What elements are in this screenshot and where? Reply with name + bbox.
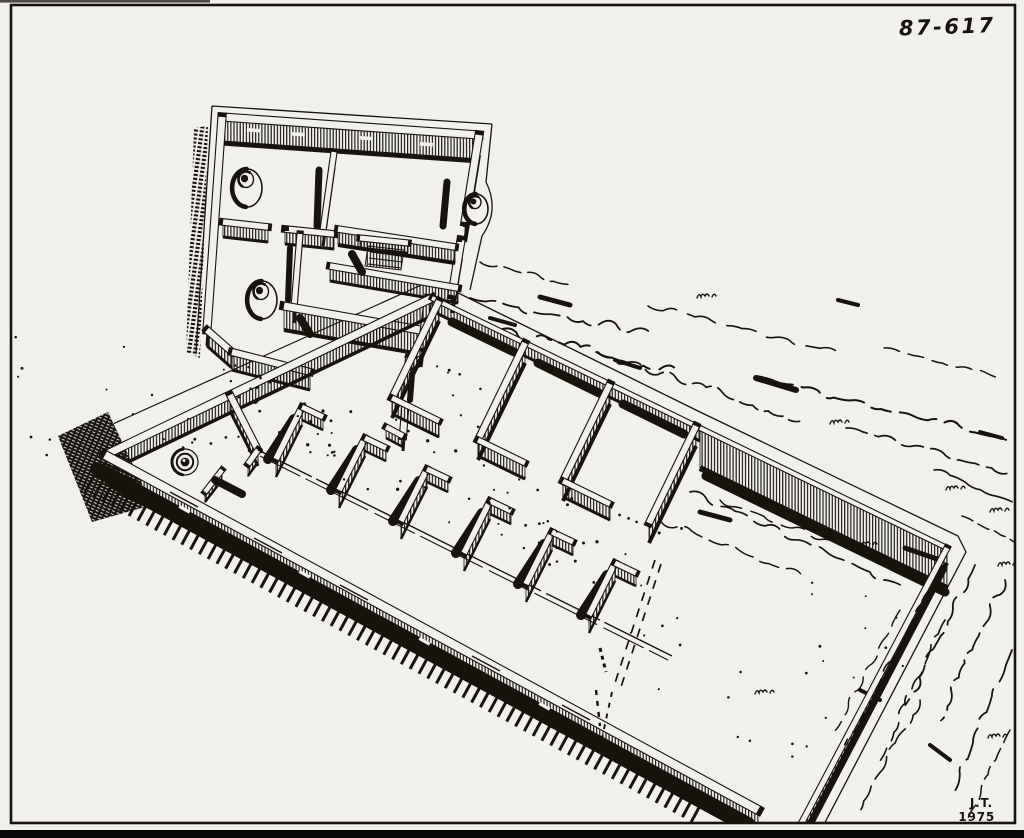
artist-initials-label: J.T. xyxy=(969,796,993,810)
scanned-figure-page: 87-617 J.T. 1975 xyxy=(0,0,1024,838)
photo-top-edge xyxy=(0,0,210,3)
catalog-number-label: 87-617 xyxy=(899,13,997,40)
basin-feature xyxy=(172,449,198,475)
signature-year-label: 1975 xyxy=(958,810,995,824)
ruins-illustration: 87-617 J.T. 1975 xyxy=(0,0,1024,838)
photo-bottom-edge xyxy=(0,830,1024,838)
